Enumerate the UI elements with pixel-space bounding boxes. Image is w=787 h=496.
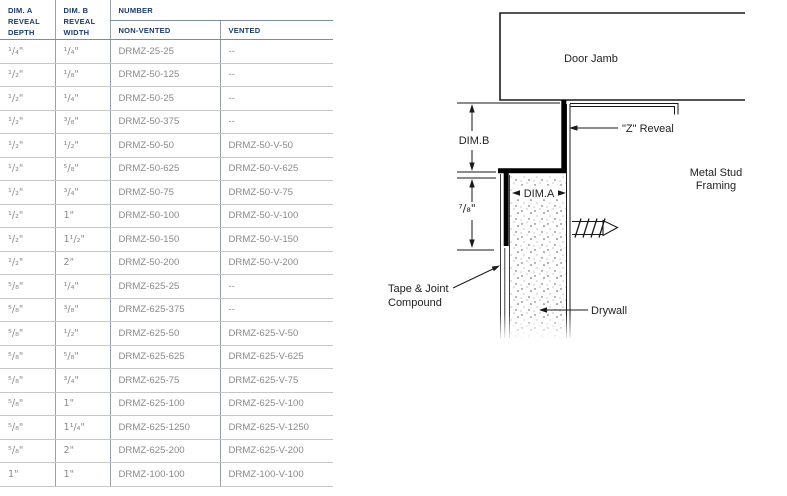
svg-text:Framing: Framing (696, 180, 736, 192)
arrow-up-icon (469, 104, 474, 113)
flange-height-label: ⁷/₈" (458, 202, 476, 215)
arrow-upright-icon (492, 266, 500, 272)
metal-stud-lines (567, 104, 679, 339)
dim-a-label: DIM.A (524, 188, 555, 200)
dim-b-label: DIM.B (459, 135, 490, 147)
arrow-down-icon (469, 163, 474, 172)
arrow-down-icon (469, 240, 474, 249)
arrow-up-icon (469, 179, 474, 188)
metal-stud-framing-label: Metal Stud Framing (690, 167, 743, 192)
door-jamb-outline (500, 13, 745, 100)
flange-height-dimension: ⁷/₈" (458, 179, 476, 248)
drywall-label: Drywall (591, 305, 627, 317)
tape-joint-compound-callout: Tape & Joint Compound (388, 266, 500, 310)
svg-text:Compound: Compound (388, 297, 442, 309)
dim-b-dimension: DIM.B (459, 104, 490, 171)
svg-text:Tape & Joint: Tape & Joint (388, 283, 449, 295)
door-jamb-label: Door Jamb (564, 53, 618, 65)
screw-icon (572, 219, 618, 238)
drywall-z-reveal-spec-sheet: DIM. A REVEAL DEPTH DIM. B REVEAL WIDTH … (0, 0, 787, 496)
dim-a-dimension: DIM.A (512, 186, 566, 201)
section-detail-diagram: Door Jamb (0, 0, 787, 496)
wall-bottom-fade (493, 314, 579, 348)
svg-text:Metal Stud: Metal Stud (690, 167, 743, 179)
z-reveal-callout: "Z" Reveal (569, 123, 674, 135)
z-reveal-label: "Z" Reveal (622, 123, 674, 135)
